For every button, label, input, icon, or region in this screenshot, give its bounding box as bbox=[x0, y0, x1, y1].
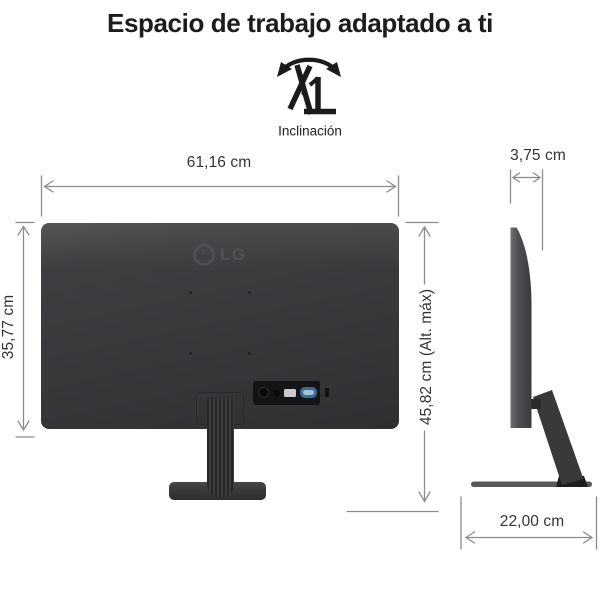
product-dimensions-infographic: Espacio de trabajo adaptado a ti Inclina… bbox=[0, 0, 600, 600]
tilt-icon bbox=[273, 52, 345, 120]
hdmi-port-icon bbox=[284, 389, 296, 397]
vesa-hole bbox=[248, 291, 251, 294]
power-port-icon bbox=[258, 387, 269, 398]
height-dimension-label: 35,77 cm bbox=[0, 295, 18, 360]
audio-jack-icon bbox=[274, 390, 280, 396]
depth-dimension-label: 3,75 cm bbox=[510, 147, 566, 165]
vesa-hole bbox=[189, 352, 192, 355]
vesa-hole bbox=[189, 291, 192, 294]
max-height-dimension-label: 45,82 cm (Alt. máx) bbox=[418, 289, 436, 425]
lg-logo-icon bbox=[193, 244, 215, 266]
side-stand-bracket bbox=[530, 399, 541, 409]
kensington-lock-slot bbox=[325, 388, 329, 397]
width-dimension-label: 61,16 cm bbox=[187, 154, 252, 172]
base-depth-dimension-label: 22,00 cm bbox=[500, 513, 565, 531]
vesa-hole bbox=[248, 352, 251, 355]
side-base-plate bbox=[471, 482, 592, 488]
stand-column bbox=[207, 396, 234, 497]
side-panel-profile bbox=[511, 228, 532, 429]
lg-logo-text: LG bbox=[220, 245, 247, 265]
tilt-feature-label: Inclinación bbox=[278, 124, 342, 139]
side-stand-arm bbox=[533, 390, 584, 485]
side-stand-foot bbox=[556, 476, 588, 487]
port-panel bbox=[253, 381, 320, 405]
page-title: Espacio de trabajo adaptado a ti bbox=[0, 8, 600, 39]
vga-port-icon bbox=[300, 387, 317, 398]
